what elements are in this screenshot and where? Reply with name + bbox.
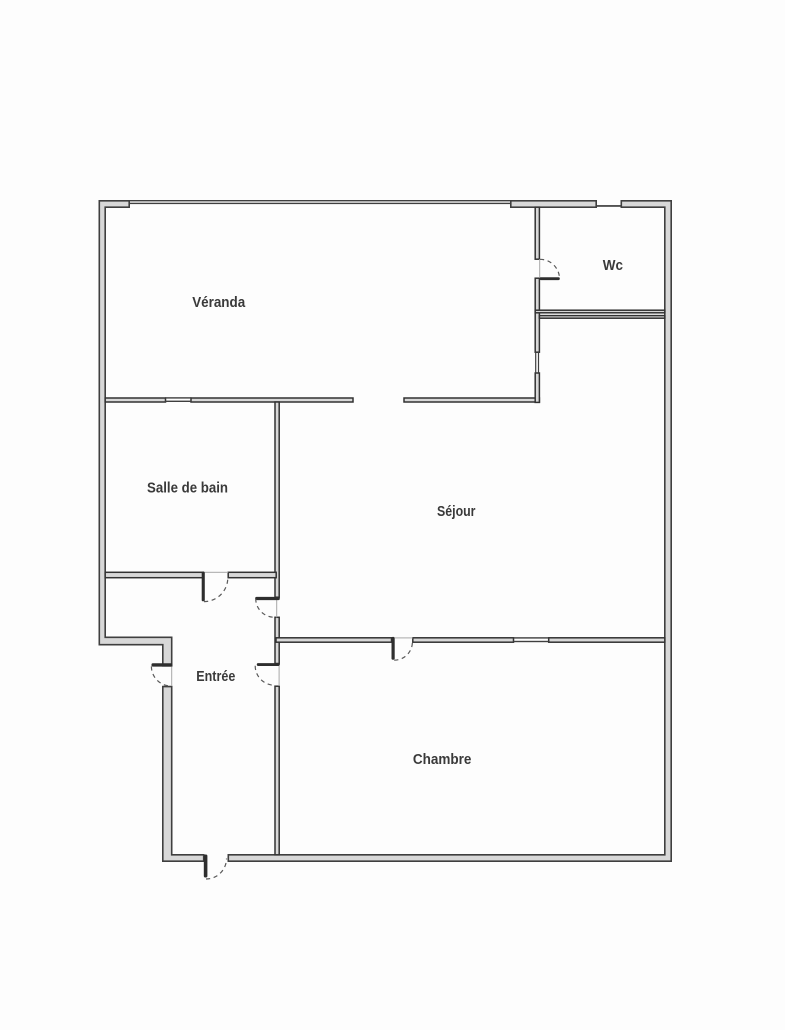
svg-text:Véranda: Véranda	[192, 294, 245, 311]
svg-text:Wc: Wc	[603, 257, 623, 274]
svg-text:Entrée: Entrée	[196, 668, 235, 685]
svg-text:Salle de bain: Salle de bain	[147, 479, 228, 496]
svg-text:Séjour: Séjour	[437, 503, 476, 520]
svg-text:Chambre: Chambre	[413, 751, 472, 768]
